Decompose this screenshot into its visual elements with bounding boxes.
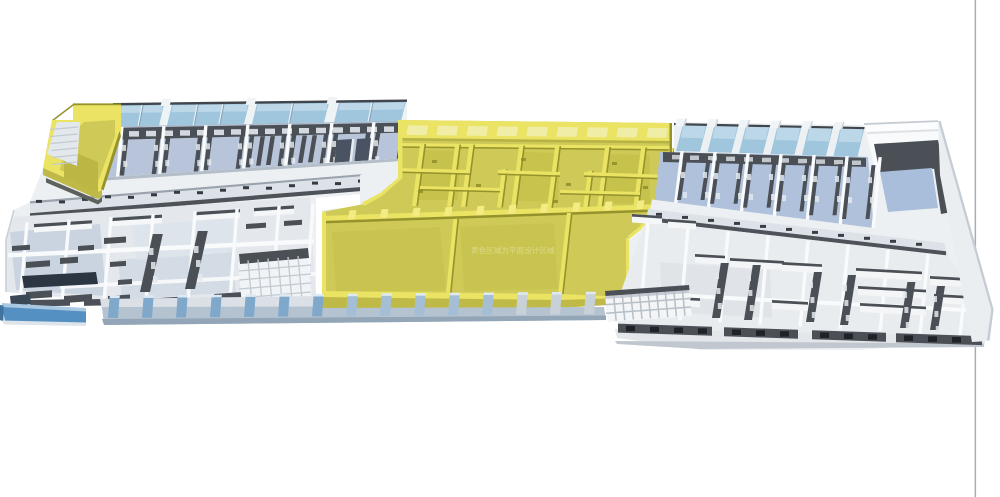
svg-text:黄色区域为平面设计区域: 黄色区域为平面设计区域 bbox=[471, 245, 555, 255]
